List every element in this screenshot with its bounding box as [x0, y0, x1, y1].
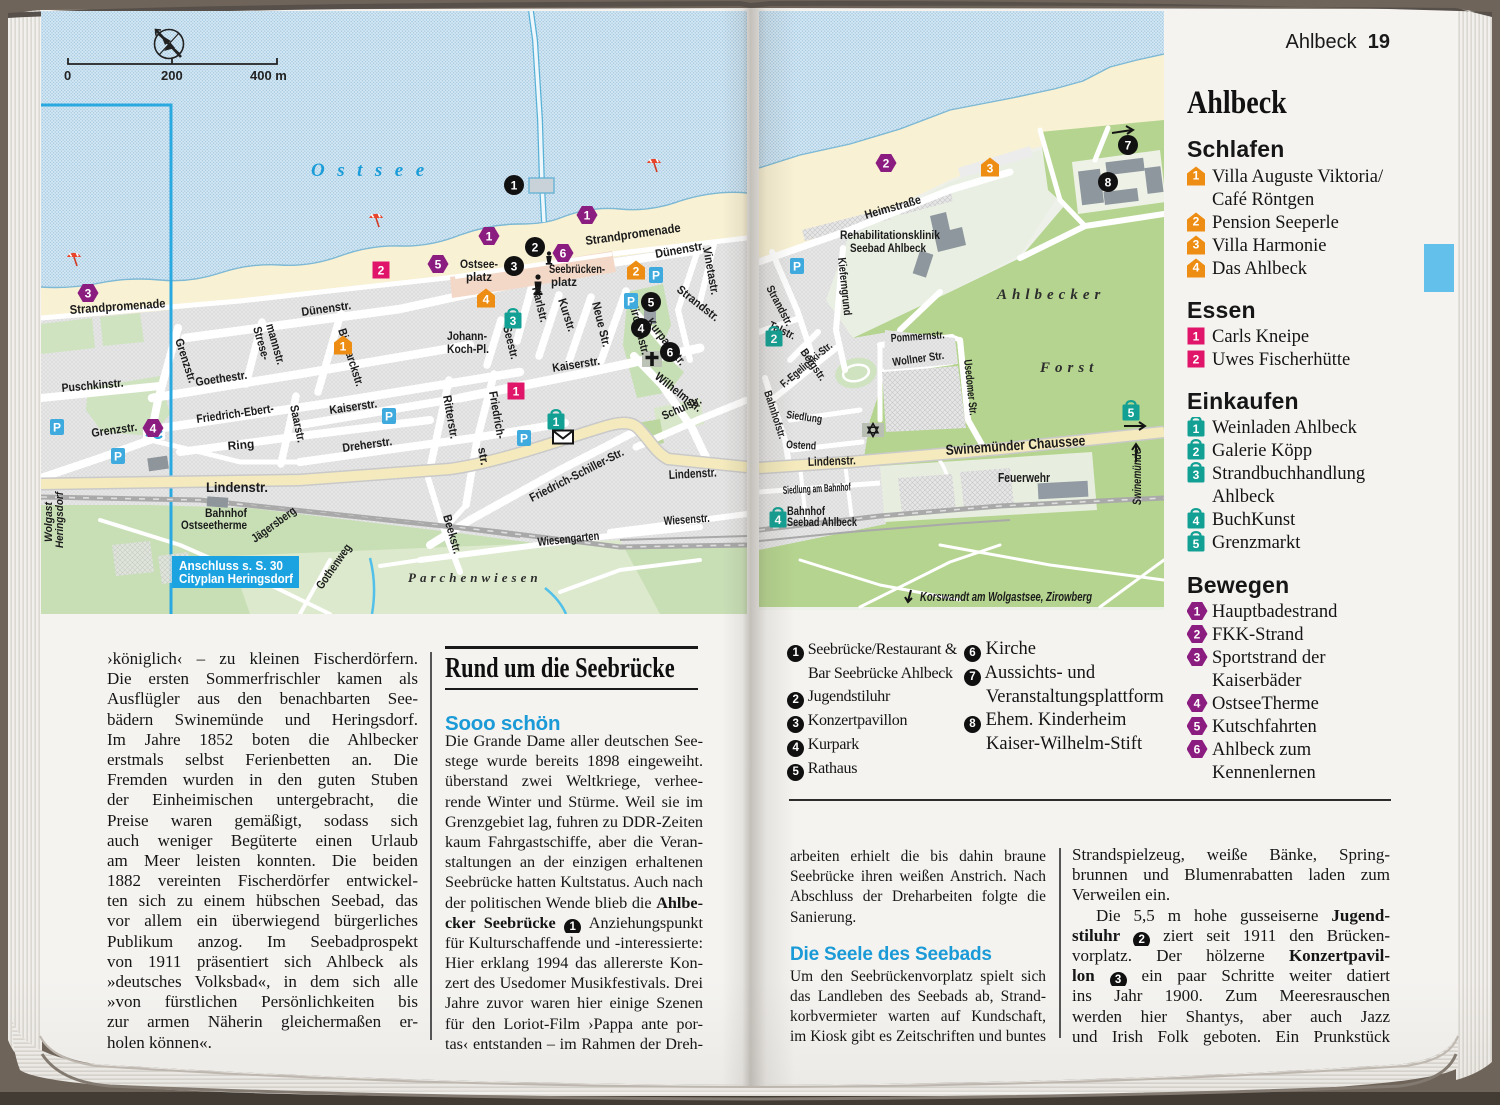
svg-text:Lindenstr.: Lindenstr.: [206, 480, 268, 495]
svg-text:Korswandt am Wolgastsee, Zirow: Korswandt am Wolgastsee, Zirowberg: [920, 590, 1092, 604]
svg-text:6: 6: [1194, 743, 1201, 757]
svg-text:Feuerwehr: Feuerwehr: [998, 471, 1050, 485]
svg-text:2: 2: [1193, 445, 1200, 459]
svg-text:3: 3: [1193, 238, 1200, 252]
svg-text:5: 5: [435, 258, 442, 272]
svg-text:3: 3: [510, 314, 517, 328]
svg-text:Ahlbecker: Ahlbecker: [996, 287, 1105, 303]
svg-text:1: 1: [584, 209, 591, 223]
svg-text:0: 0: [64, 68, 71, 83]
svg-text:5: 5: [1194, 720, 1201, 734]
svg-text:Seebrücken-: Seebrücken-: [549, 262, 605, 276]
svg-text:Ring: Ring: [227, 437, 255, 453]
svg-text:1: 1: [1193, 169, 1200, 183]
svg-text:5: 5: [648, 296, 655, 310]
svg-text:4: 4: [483, 293, 490, 307]
svg-text:1: 1: [513, 385, 520, 399]
svg-text:Parchenwiesen: Parchenwiesen: [408, 570, 542, 585]
svg-text:2: 2: [1193, 353, 1200, 367]
svg-text:2: 2: [1194, 628, 1201, 642]
svg-text:Lindenstr.: Lindenstr.: [668, 466, 717, 482]
svg-text:Seebad Ahlbeck: Seebad Ahlbeck: [787, 517, 857, 529]
svg-text:Ostsee-: Ostsee-: [460, 257, 498, 271]
svg-text:6: 6: [560, 247, 567, 261]
svg-text:Swinemünde: Swinemünde: [1130, 449, 1144, 505]
svg-text:3: 3: [1193, 468, 1200, 482]
svg-text:2: 2: [633, 265, 640, 279]
svg-text:1: 1: [1193, 330, 1200, 344]
svg-text:3: 3: [85, 287, 92, 301]
svg-text:1: 1: [1193, 422, 1200, 436]
svg-text:platz: platz: [551, 275, 577, 289]
svg-text:1: 1: [511, 179, 518, 193]
svg-text:1: 1: [340, 340, 347, 354]
svg-text:2: 2: [378, 264, 385, 278]
svg-text:2: 2: [883, 157, 890, 171]
svg-text:5: 5: [1128, 406, 1135, 420]
svg-text:Forst: Forst: [1039, 360, 1098, 376]
svg-text:Seebad Ahlbeck: Seebad Ahlbeck: [850, 241, 926, 255]
svg-text:1: 1: [553, 415, 560, 429]
svg-text:4: 4: [150, 422, 157, 436]
svg-text:Johann-: Johann-: [447, 329, 487, 343]
svg-text:4: 4: [1193, 261, 1200, 275]
svg-text:4: 4: [638, 322, 645, 336]
svg-text:7: 7: [1125, 139, 1132, 153]
svg-text:Rehabilitationsklinik: Rehabilitationsklinik: [840, 228, 940, 242]
svg-text:3: 3: [511, 260, 518, 274]
svg-text:5: 5: [1193, 537, 1200, 551]
svg-text:2: 2: [532, 241, 539, 255]
svg-text:Ostsee: Ostsee: [311, 160, 437, 181]
svg-text:Koch-Pl.: Koch-Pl.: [447, 342, 489, 356]
svg-text:Cityplan Heringsdorf: Cityplan Heringsdorf: [179, 572, 294, 586]
svg-text:Anschluss s. S. 30: Anschluss s. S. 30: [179, 559, 283, 573]
svg-text:1: 1: [1194, 605, 1201, 619]
svg-text:Heringsdorf: Heringsdorf: [54, 491, 66, 548]
svg-text:3: 3: [1194, 651, 1201, 665]
svg-text:200: 200: [161, 68, 183, 83]
svg-text:400 m: 400 m: [250, 68, 287, 83]
svg-text:Lindenstr.: Lindenstr.: [808, 453, 856, 469]
svg-text:4: 4: [1194, 697, 1201, 711]
svg-text:4: 4: [1193, 514, 1200, 528]
svg-text:3: 3: [987, 162, 994, 176]
svg-text:6: 6: [667, 346, 674, 360]
svg-text:Ostseetherme: Ostseetherme: [181, 518, 247, 532]
svg-text:8: 8: [1105, 176, 1112, 190]
svg-text:2: 2: [1193, 215, 1200, 229]
svg-text:platz: platz: [466, 270, 492, 284]
svg-text:1: 1: [486, 230, 493, 244]
